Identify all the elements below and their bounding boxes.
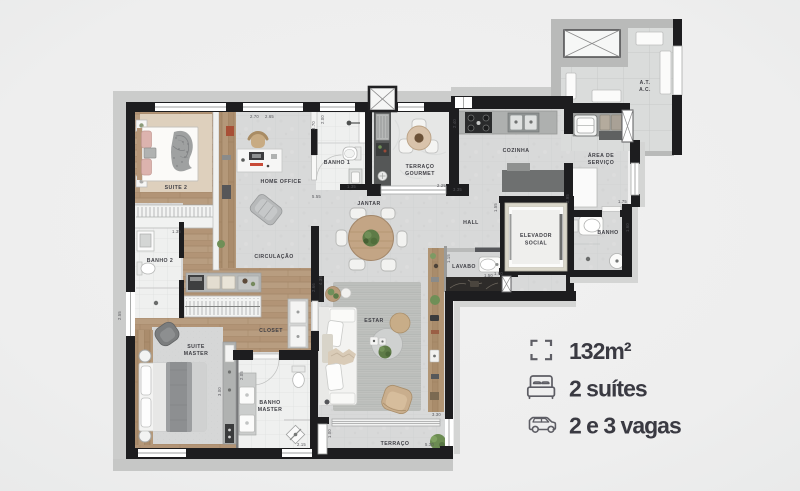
svg-text:3.35: 3.35 <box>453 187 462 192</box>
svg-text:3.70: 3.70 <box>311 121 316 130</box>
svg-text:BANHO 1: BANHO 1 <box>324 160 351 166</box>
svg-text:BANHO: BANHO <box>597 230 618 236</box>
svg-text:2.25: 2.25 <box>437 183 446 188</box>
svg-text:1.00: 1.00 <box>327 429 332 438</box>
svg-text:SERVIÇO: SERVIÇO <box>588 160 614 166</box>
svg-text:SUITE 2: SUITE 2 <box>165 185 188 191</box>
svg-text:2.00: 2.00 <box>320 115 325 124</box>
svg-text:1.15: 1.15 <box>446 254 451 263</box>
svg-text:2.40: 2.40 <box>452 119 457 128</box>
svg-text:ÁREA DE: ÁREA DE <box>588 152 614 159</box>
svg-text:1.60: 1.60 <box>625 223 630 232</box>
svg-text:132m²: 132m² <box>569 338 632 364</box>
svg-text:2.66: 2.66 <box>311 283 316 292</box>
svg-text:3.00: 3.00 <box>217 387 222 396</box>
svg-text:HALL: HALL <box>463 220 479 226</box>
svg-text:MASTER: MASTER <box>184 351 209 357</box>
svg-text:GOURMET: GOURMET <box>405 171 435 177</box>
svg-text:SUITE: SUITE <box>187 344 205 350</box>
svg-text:5.30: 5.30 <box>425 442 434 447</box>
svg-text:TERRAÇO: TERRAÇO <box>406 164 435 170</box>
svg-text:2.05: 2.05 <box>239 371 244 380</box>
svg-text:SOCIAL: SOCIAL <box>525 241 548 247</box>
svg-text:A.C.: A.C. <box>639 87 651 93</box>
svg-text:2.70: 2.70 <box>250 114 259 119</box>
svg-text:1.35: 1.35 <box>347 184 356 189</box>
svg-text:BANHO: BANHO <box>259 400 280 406</box>
svg-text:LAVABO: LAVABO <box>452 264 476 270</box>
svg-text:3.30: 3.30 <box>432 412 441 417</box>
svg-text:1.50: 1.50 <box>484 273 493 278</box>
svg-text:2 e 3 vagas: 2 e 3 vagas <box>569 413 681 439</box>
svg-text:5.55: 5.55 <box>312 194 321 199</box>
svg-text:COZINHA: COZINHA <box>503 148 530 154</box>
svg-text:2.95: 2.95 <box>565 194 570 203</box>
svg-text:TERRAÇO: TERRAÇO <box>381 441 410 447</box>
svg-text:MASTER: MASTER <box>258 407 283 413</box>
svg-text:CIRCULAÇÃO: CIRCULAÇÃO <box>254 253 293 260</box>
svg-text:1.35: 1.35 <box>172 229 181 234</box>
svg-text:2.15: 2.15 <box>297 442 306 447</box>
svg-text:1.55: 1.55 <box>493 203 498 212</box>
svg-text:1.60: 1.60 <box>494 271 503 276</box>
svg-text:2.55: 2.55 <box>117 311 122 320</box>
svg-text:2 suítes: 2 suítes <box>569 376 647 402</box>
svg-text:4.35: 4.35 <box>318 276 323 285</box>
svg-text:1.75: 1.75 <box>618 199 627 204</box>
svg-text:2.65: 2.65 <box>265 114 274 119</box>
svg-text:HOME OFFICE: HOME OFFICE <box>261 179 302 185</box>
svg-text:CLOSET: CLOSET <box>259 328 283 334</box>
svg-text:A.T.: A.T. <box>640 80 651 86</box>
svg-text:ELEVADOR: ELEVADOR <box>520 233 552 239</box>
svg-text:JANTAR: JANTAR <box>357 201 380 207</box>
svg-text:ESTAR: ESTAR <box>364 318 383 324</box>
svg-text:BANHO 2: BANHO 2 <box>147 258 174 264</box>
